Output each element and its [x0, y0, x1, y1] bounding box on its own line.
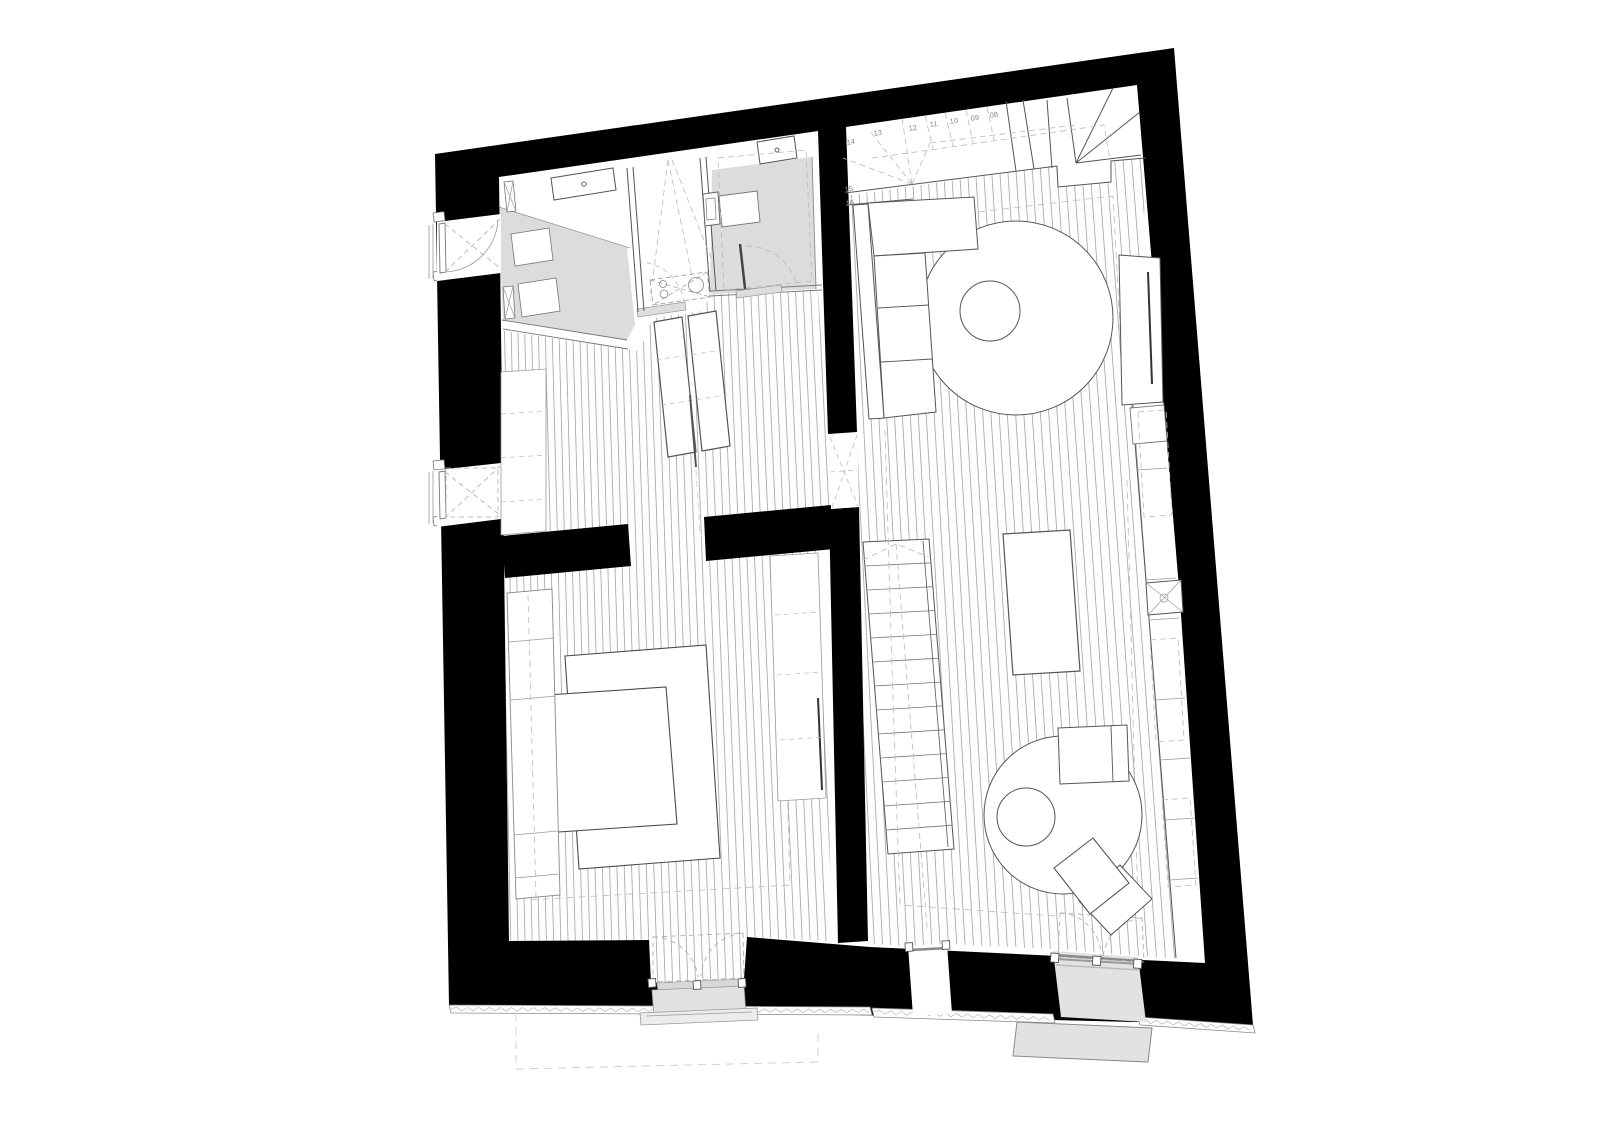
svg-text:15: 15 [844, 184, 854, 194]
svg-text:10: 10 [949, 116, 959, 126]
svg-text:08: 08 [989, 110, 999, 120]
svg-text:13: 13 [873, 128, 883, 138]
svg-text:12: 12 [908, 123, 918, 133]
svg-text:09: 09 [970, 113, 980, 123]
svg-text:11: 11 [929, 119, 938, 129]
svg-text:14: 14 [846, 137, 856, 147]
